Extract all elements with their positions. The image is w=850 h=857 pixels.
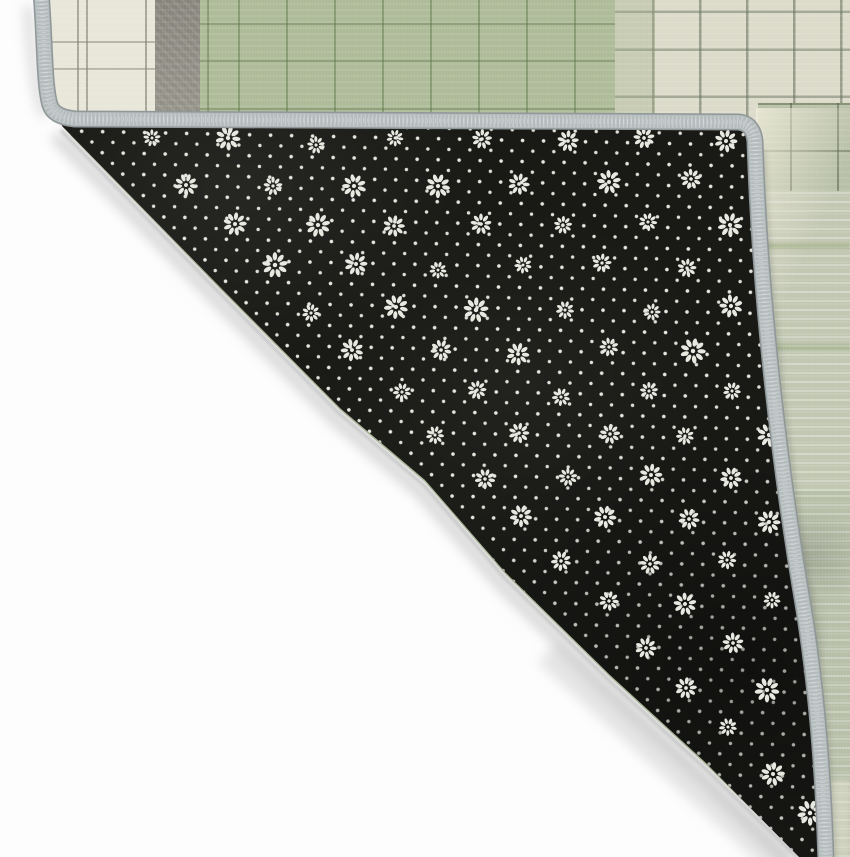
serged-binding-edge — [0, 0, 850, 857]
rug-product-photo — [0, 0, 850, 857]
